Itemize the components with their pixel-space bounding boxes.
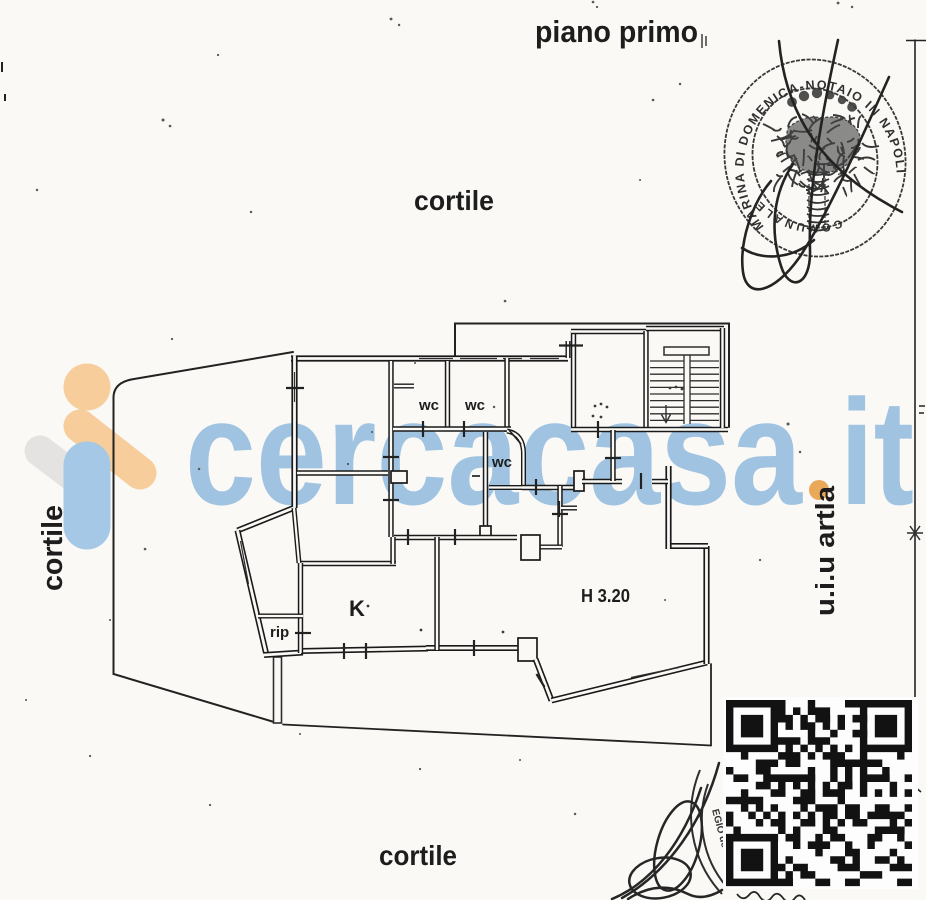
svg-text:cortile: cortile [37, 505, 69, 591]
svg-text:wc: wc [418, 397, 439, 414]
svg-text:H 3.20: H 3.20 [581, 586, 630, 606]
svg-text:cercacasa: cercacasa [185, 368, 803, 536]
svg-text:u.i.u artla: u.i.u artla [812, 485, 840, 616]
svg-text:K: K [349, 596, 365, 621]
svg-text:cortile: cortile [414, 185, 494, 216]
svg-text:rip: rip [270, 624, 289, 641]
svg-text:wc: wc [491, 454, 512, 471]
svg-text:wc: wc [464, 397, 485, 414]
svg-text:piano primo: piano primo [535, 14, 698, 49]
svg-text:cortile: cortile [379, 840, 457, 871]
svg-text:it: it [840, 368, 914, 536]
